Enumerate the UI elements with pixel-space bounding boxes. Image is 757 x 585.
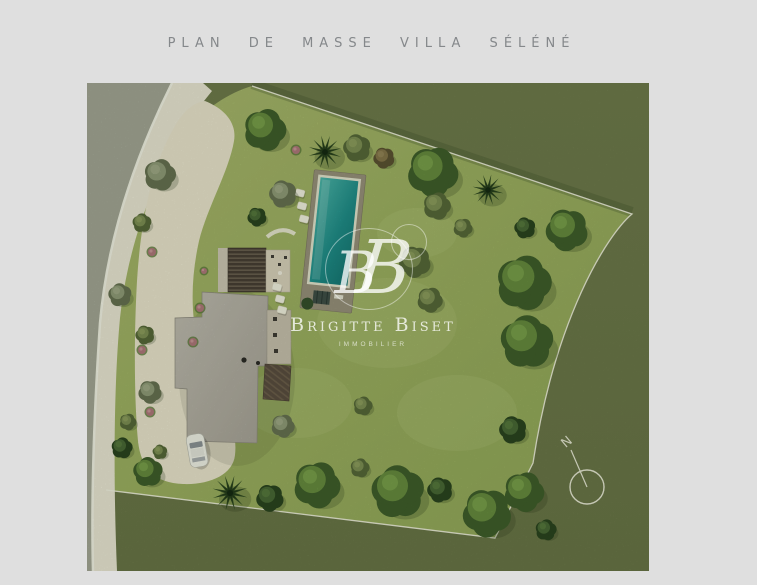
page: PLAN DE MASSE VILLA SÉLÉNÉ (0, 0, 757, 585)
page-title: PLAN DE MASSE VILLA SÉLÉNÉ (0, 36, 743, 51)
noise-overlay (87, 83, 649, 571)
site-plan: N BB Brigitte Biset IMMOBILIER (87, 83, 649, 571)
site-plan-graphic: N (87, 83, 649, 571)
